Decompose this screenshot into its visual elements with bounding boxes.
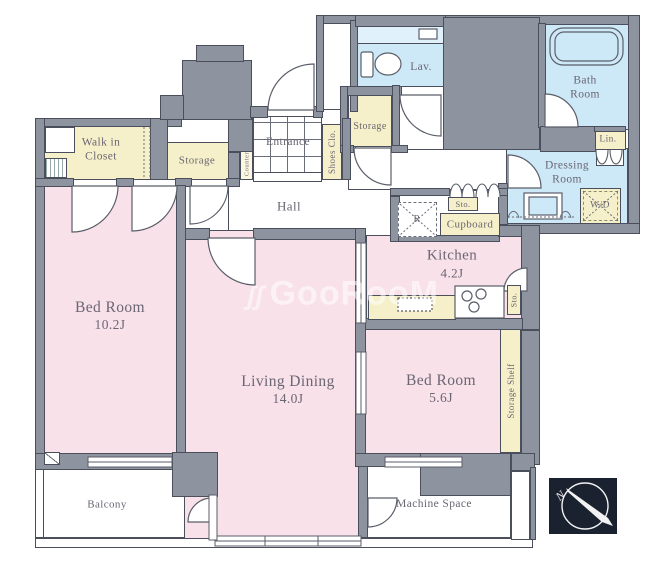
toilet-icon [375,53,401,75]
compass-north-label: N [552,487,569,504]
washer-dryer-label: W/D [590,200,610,211]
stove-icon [455,286,504,318]
bathtub-icon [555,32,618,61]
closet-cubby [45,127,75,153]
balcony-label: Balcony [87,499,126,512]
toilet-icon [361,52,373,77]
sink-icon [529,197,557,215]
entrance-label: Entrance [266,136,310,150]
storage-bifold-icon [450,184,462,197]
storage-left-label: Storage [179,155,215,168]
storage-bifold-icon [488,184,500,197]
bedroom-second-label: Bed Room5.6J [406,372,476,406]
bathtub-icon [550,28,623,65]
kitchen-label: Kitchen4.2J [427,247,477,280]
bath-label: BathRoom [570,74,600,101]
bedroom-main-door-swing [132,186,177,231]
counter-label: Counter [244,152,251,176]
dressing-label: DressingRoom [545,159,589,186]
shoes-closet-label: Shoes Clo. [327,130,337,174]
lavatory-label: Lav. [410,61,432,75]
storage-small-side-label: Sto. [510,293,519,308]
refrigerator-label: R [413,214,420,226]
hall-label: Hall [277,198,301,213]
compass-needle-icon [566,488,613,526]
cistern-icon [419,29,437,39]
storage-hall-label: Storage [353,121,386,133]
door-leaf [209,495,217,540]
compass-icon: N [549,478,617,534]
closet-hatch-box [45,158,67,178]
storage-shelf-label: Storage Shelf [506,363,516,418]
machine-space-label: Machine Space [396,498,472,512]
linen-bifold-icon [610,150,622,164]
counter-sink-icon [398,298,432,311]
compass: N [549,478,617,534]
living-dining-label: Living Dining14.0J [241,373,334,407]
floor-plan: Walk inCloset Storage Entrance Shoes Clo… [0,0,668,584]
linen-label: Lin. [599,134,616,145]
storage-small-top-label: Sto. [455,199,470,209]
storage-bifold-icon [476,184,488,197]
machine-space-door-swing [368,498,397,527]
bedroom-main-label: Bed Room10.2J [75,299,145,333]
storage-left-door-swing [190,186,228,224]
shutter-box-icon [44,452,60,465]
storage-hall-door-swing [354,148,391,185]
living-door-swing [208,238,255,285]
storage-bifold-icon [462,184,474,197]
lavatory-door-swing [400,95,441,136]
balcony-partition-door-swing [188,498,212,522]
dressing-door-swing [508,155,541,188]
walk-in-closet-door-swing [72,186,118,232]
walk-in-closet-label: Walk inCloset [82,136,121,163]
entrance-door-swing [268,64,314,110]
cupboard-label: Cupboard [447,219,494,232]
linen-bifold-icon [596,150,608,164]
